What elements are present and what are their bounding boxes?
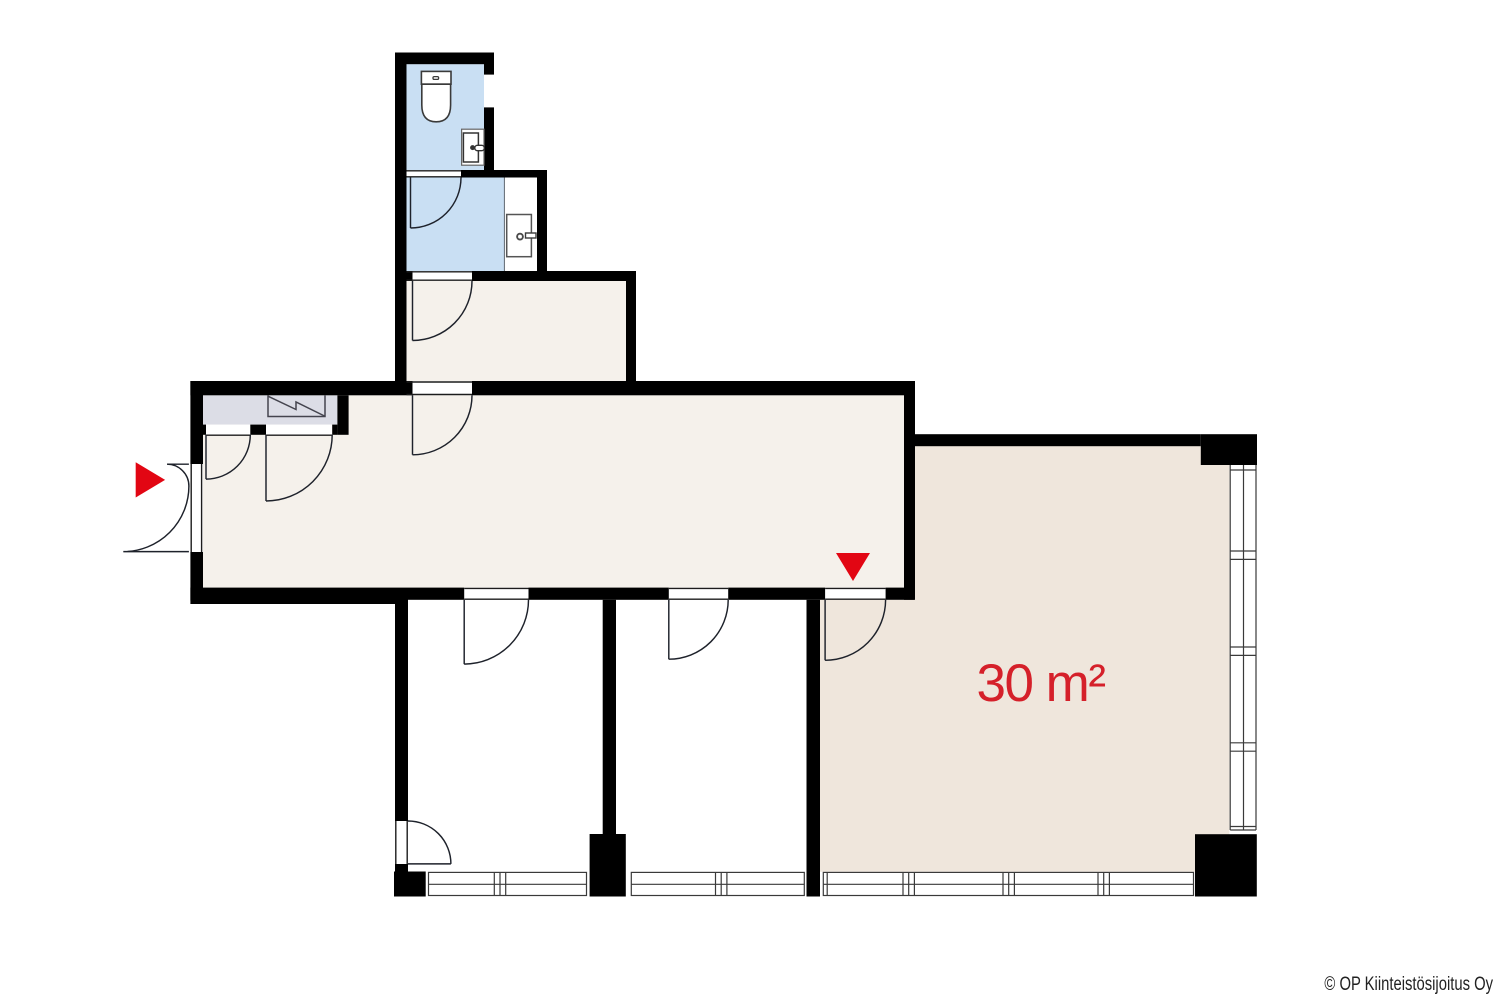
svg-text:30 m²: 30 m² bbox=[977, 654, 1106, 713]
svg-text:© OP Kiinteistösijoitus Oy: © OP Kiinteistösijoitus Oy bbox=[1324, 972, 1493, 995]
